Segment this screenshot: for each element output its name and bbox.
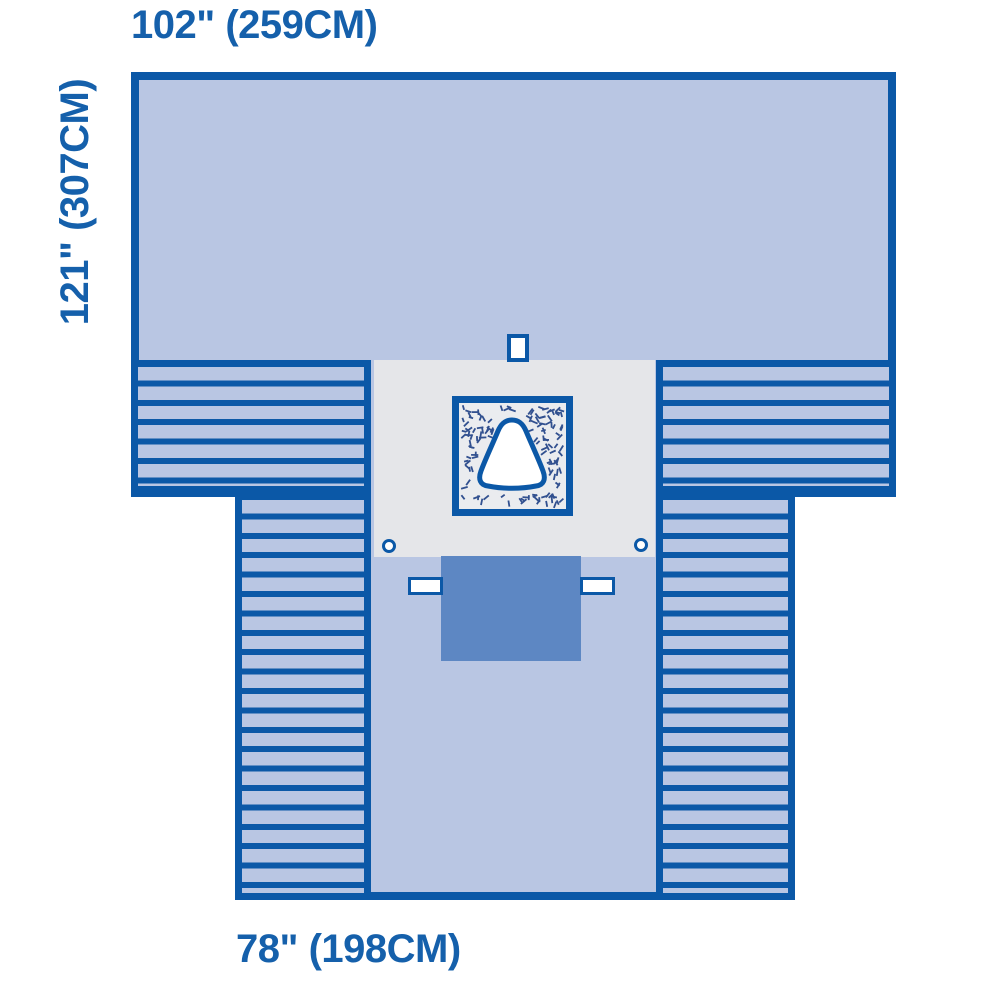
fluid-pouch	[441, 556, 581, 661]
tube-holder-left	[382, 539, 396, 553]
pleat-panel-lower-left	[235, 493, 371, 900]
top-fixation-tab	[507, 334, 529, 362]
incise-speckle-pattern	[459, 403, 566, 509]
fenestration-opening	[480, 420, 545, 488]
pleat-panel-upper-left	[131, 360, 371, 493]
dimension-label-top: 102" (259CM)	[131, 5, 377, 45]
pleat-panel-upper-right	[656, 360, 896, 493]
adhesive-tab-right	[580, 577, 615, 595]
incise-area	[452, 396, 573, 516]
adhesive-tab-left	[408, 577, 443, 595]
dimension-label-bottom: 78" (198CM)	[236, 929, 461, 969]
pleat-panel-lower-right	[656, 493, 795, 900]
tube-holder-right	[634, 538, 648, 552]
drape-diagram: 102" (259CM) 121" (307CM) 78" (198CM)	[0, 0, 986, 986]
dimension-label-left: 121" (307CM)	[55, 79, 95, 325]
